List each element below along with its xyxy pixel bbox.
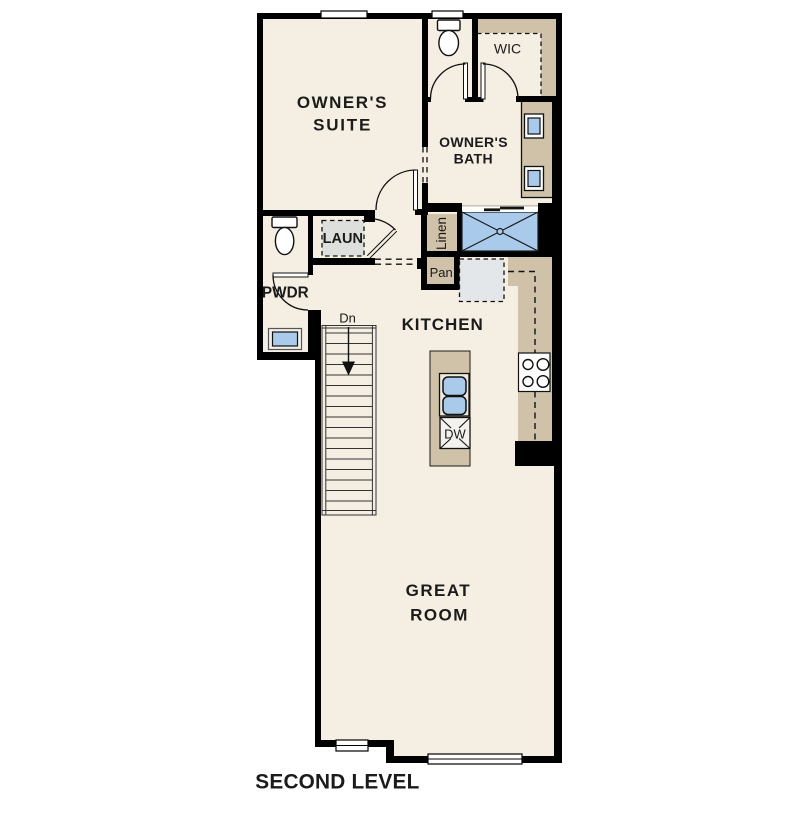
svg-text:OWNER'S: OWNER'S (297, 93, 388, 112)
svg-text:Pan: Pan (430, 265, 453, 280)
svg-text:SUITE: SUITE (313, 116, 372, 135)
svg-text:BATH: BATH (454, 150, 493, 166)
svg-text:LAUN: LAUN (323, 231, 363, 247)
svg-text:DW: DW (444, 427, 466, 442)
svg-text:GREAT: GREAT (406, 581, 472, 600)
svg-text:Linen: Linen (434, 217, 449, 250)
svg-text:WIC: WIC (494, 41, 521, 57)
svg-text:SECOND LEVEL: SECOND LEVEL (255, 770, 419, 793)
svg-text:Dn: Dn (339, 311, 356, 326)
svg-text:ROOM: ROOM (410, 605, 469, 624)
svg-text:OWNER'S: OWNER'S (439, 134, 508, 150)
svg-text:KITCHEN: KITCHEN (402, 315, 484, 334)
svg-text:PWDR: PWDR (262, 285, 309, 302)
